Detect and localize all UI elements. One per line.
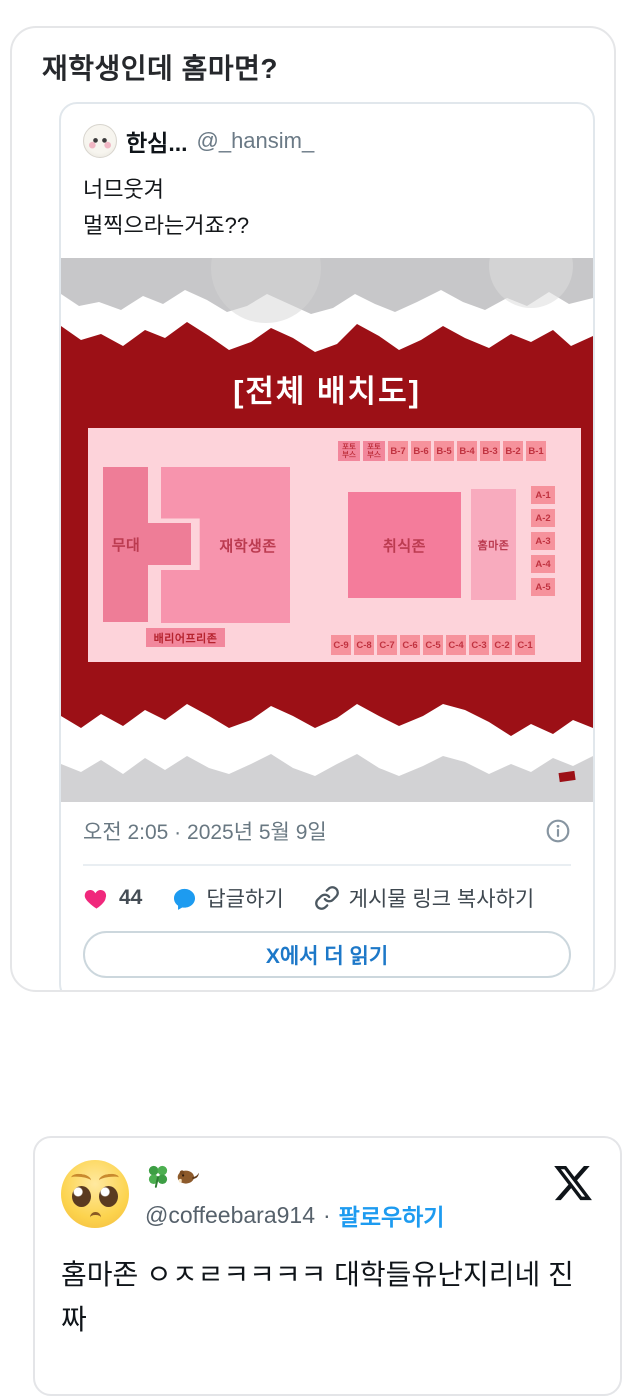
booth-box: B-6 (411, 441, 431, 461)
separator-dot: · (323, 1202, 331, 1229)
tweet-text-line: 너므웃겨 (83, 172, 571, 208)
booth-box: B-3 (480, 441, 500, 461)
info-icon[interactable] (545, 818, 571, 844)
avatar[interactable] (61, 1160, 129, 1228)
user-handle[interactable]: @_hansim_ (197, 128, 315, 154)
booth-box: C-4 (446, 635, 466, 655)
follow-button[interactable]: 팔로우하기 (339, 1198, 445, 1232)
tweet-header: 한심... @_hansim_ (83, 124, 571, 158)
display-name[interactable] (145, 1162, 552, 1190)
embedded-tweet-card-2: @coffeebara914 · 팔로우하기 홈마존 ㅇㅈㄹㅋㅋㅋㅋ 대학들유난… (33, 1136, 622, 1396)
booth-box: A-4 (531, 555, 555, 573)
booth-box: C-9 (331, 635, 351, 655)
zone-current-students-label: 재학생존 (206, 535, 290, 556)
layout-map-title: [전체 배치도] (61, 366, 593, 411)
tweet-actions: 44 답글하기 게시물 링크 복사하기 (83, 866, 571, 931)
booth-box: B-7 (388, 441, 408, 461)
booth-box: C-8 (354, 635, 374, 655)
booth-box: C-7 (377, 635, 397, 655)
post-container-card: 재학생인데 홈마면? 한심... @_hansim_ 너므웃겨 멀찍으라는거죠?… (10, 26, 616, 992)
booth-box: A-1 (531, 486, 555, 504)
venue-layout-map: 무대 재학생존 취식존 홈마존 포토 부스 포토 부스 (88, 428, 581, 662)
zone-homma: 홈마존 (471, 489, 516, 600)
embedded-tweet-card: 한심... @_hansim_ 너므웃겨 멀찍으라는거죠?? (59, 102, 595, 992)
user-handle[interactable]: @coffeebara914 (145, 1202, 315, 1229)
clover-emoji-icon (145, 1163, 171, 1189)
tweet-timestamp: 오전 2:05 · 2025년 5월 9일 (83, 816, 327, 846)
booth-column-right: A-1 A-2 A-3 A-4 A-5 (531, 486, 555, 596)
heart-icon (83, 885, 110, 912)
read-more-on-x-button[interactable]: X에서 더 읽기 (83, 931, 571, 978)
booth-box: C-1 (515, 635, 535, 655)
tweet-text: 홈마존 ㅇㅈㄹㅋㅋㅋㅋ 대학들유난지리네 진짜 (61, 1252, 594, 1342)
tweet-image[interactable]: [전체 배치도] 무대 재학생존 취식존 홈마존 포토 부스 (61, 258, 593, 802)
booth-row-top: 포토 부스 포토 부스 B-7 B-6 B-5 B-4 B-3 B-2 B-1 (338, 441, 546, 461)
photo-booth-box: 포토 부스 (363, 441, 385, 461)
booth-box: C-3 (469, 635, 489, 655)
zone-eating-label: 취식존 (383, 535, 426, 556)
booth-box: C-2 (492, 635, 512, 655)
tweet-text: 너므웃겨 멀찍으라는거죠?? (83, 172, 571, 244)
page-title: 재학생인데 홈마면? (42, 52, 594, 86)
link-icon (314, 885, 340, 911)
booth-box: A-2 (531, 509, 555, 527)
like-button[interactable]: 44 (83, 885, 142, 912)
booth-box: A-3 (531, 532, 555, 550)
zone-eating: 취식존 (348, 492, 461, 598)
booth-box: C-5 (423, 635, 443, 655)
x-logo-icon[interactable] (552, 1162, 594, 1204)
booth-row-bottom: C-9 C-8 C-7 C-6 C-5 C-4 C-3 C-2 C-1 (331, 635, 535, 655)
beaver-emoji-icon (175, 1163, 201, 1189)
booth-box: B-1 (526, 441, 546, 461)
booth-box: B-5 (434, 441, 454, 461)
like-count: 44 (119, 886, 142, 910)
copy-link-button[interactable]: 게시물 링크 복사하기 (314, 883, 535, 913)
booth-box: A-5 (531, 578, 555, 596)
booth-box: B-4 (457, 441, 477, 461)
zone-barrier-free-label: 배리어프리존 (146, 628, 225, 647)
reply-label: 답글하기 (206, 883, 283, 913)
booth-box: B-2 (503, 441, 523, 461)
tweet-text-line: 멀찍으라는거죠?? (83, 208, 571, 244)
photo-booth-box: 포토 부스 (338, 441, 360, 461)
zone-stage-label: 무대 (96, 534, 156, 555)
zone-homma-label: 홈마존 (478, 537, 510, 553)
copy-link-label: 게시물 링크 복사하기 (349, 883, 535, 913)
reply-bubble-icon (172, 886, 197, 911)
avatar[interactable] (83, 124, 117, 158)
booth-box: C-6 (400, 635, 420, 655)
reply-button[interactable]: 답글하기 (172, 883, 283, 913)
display-name[interactable]: 한심... (126, 124, 188, 158)
